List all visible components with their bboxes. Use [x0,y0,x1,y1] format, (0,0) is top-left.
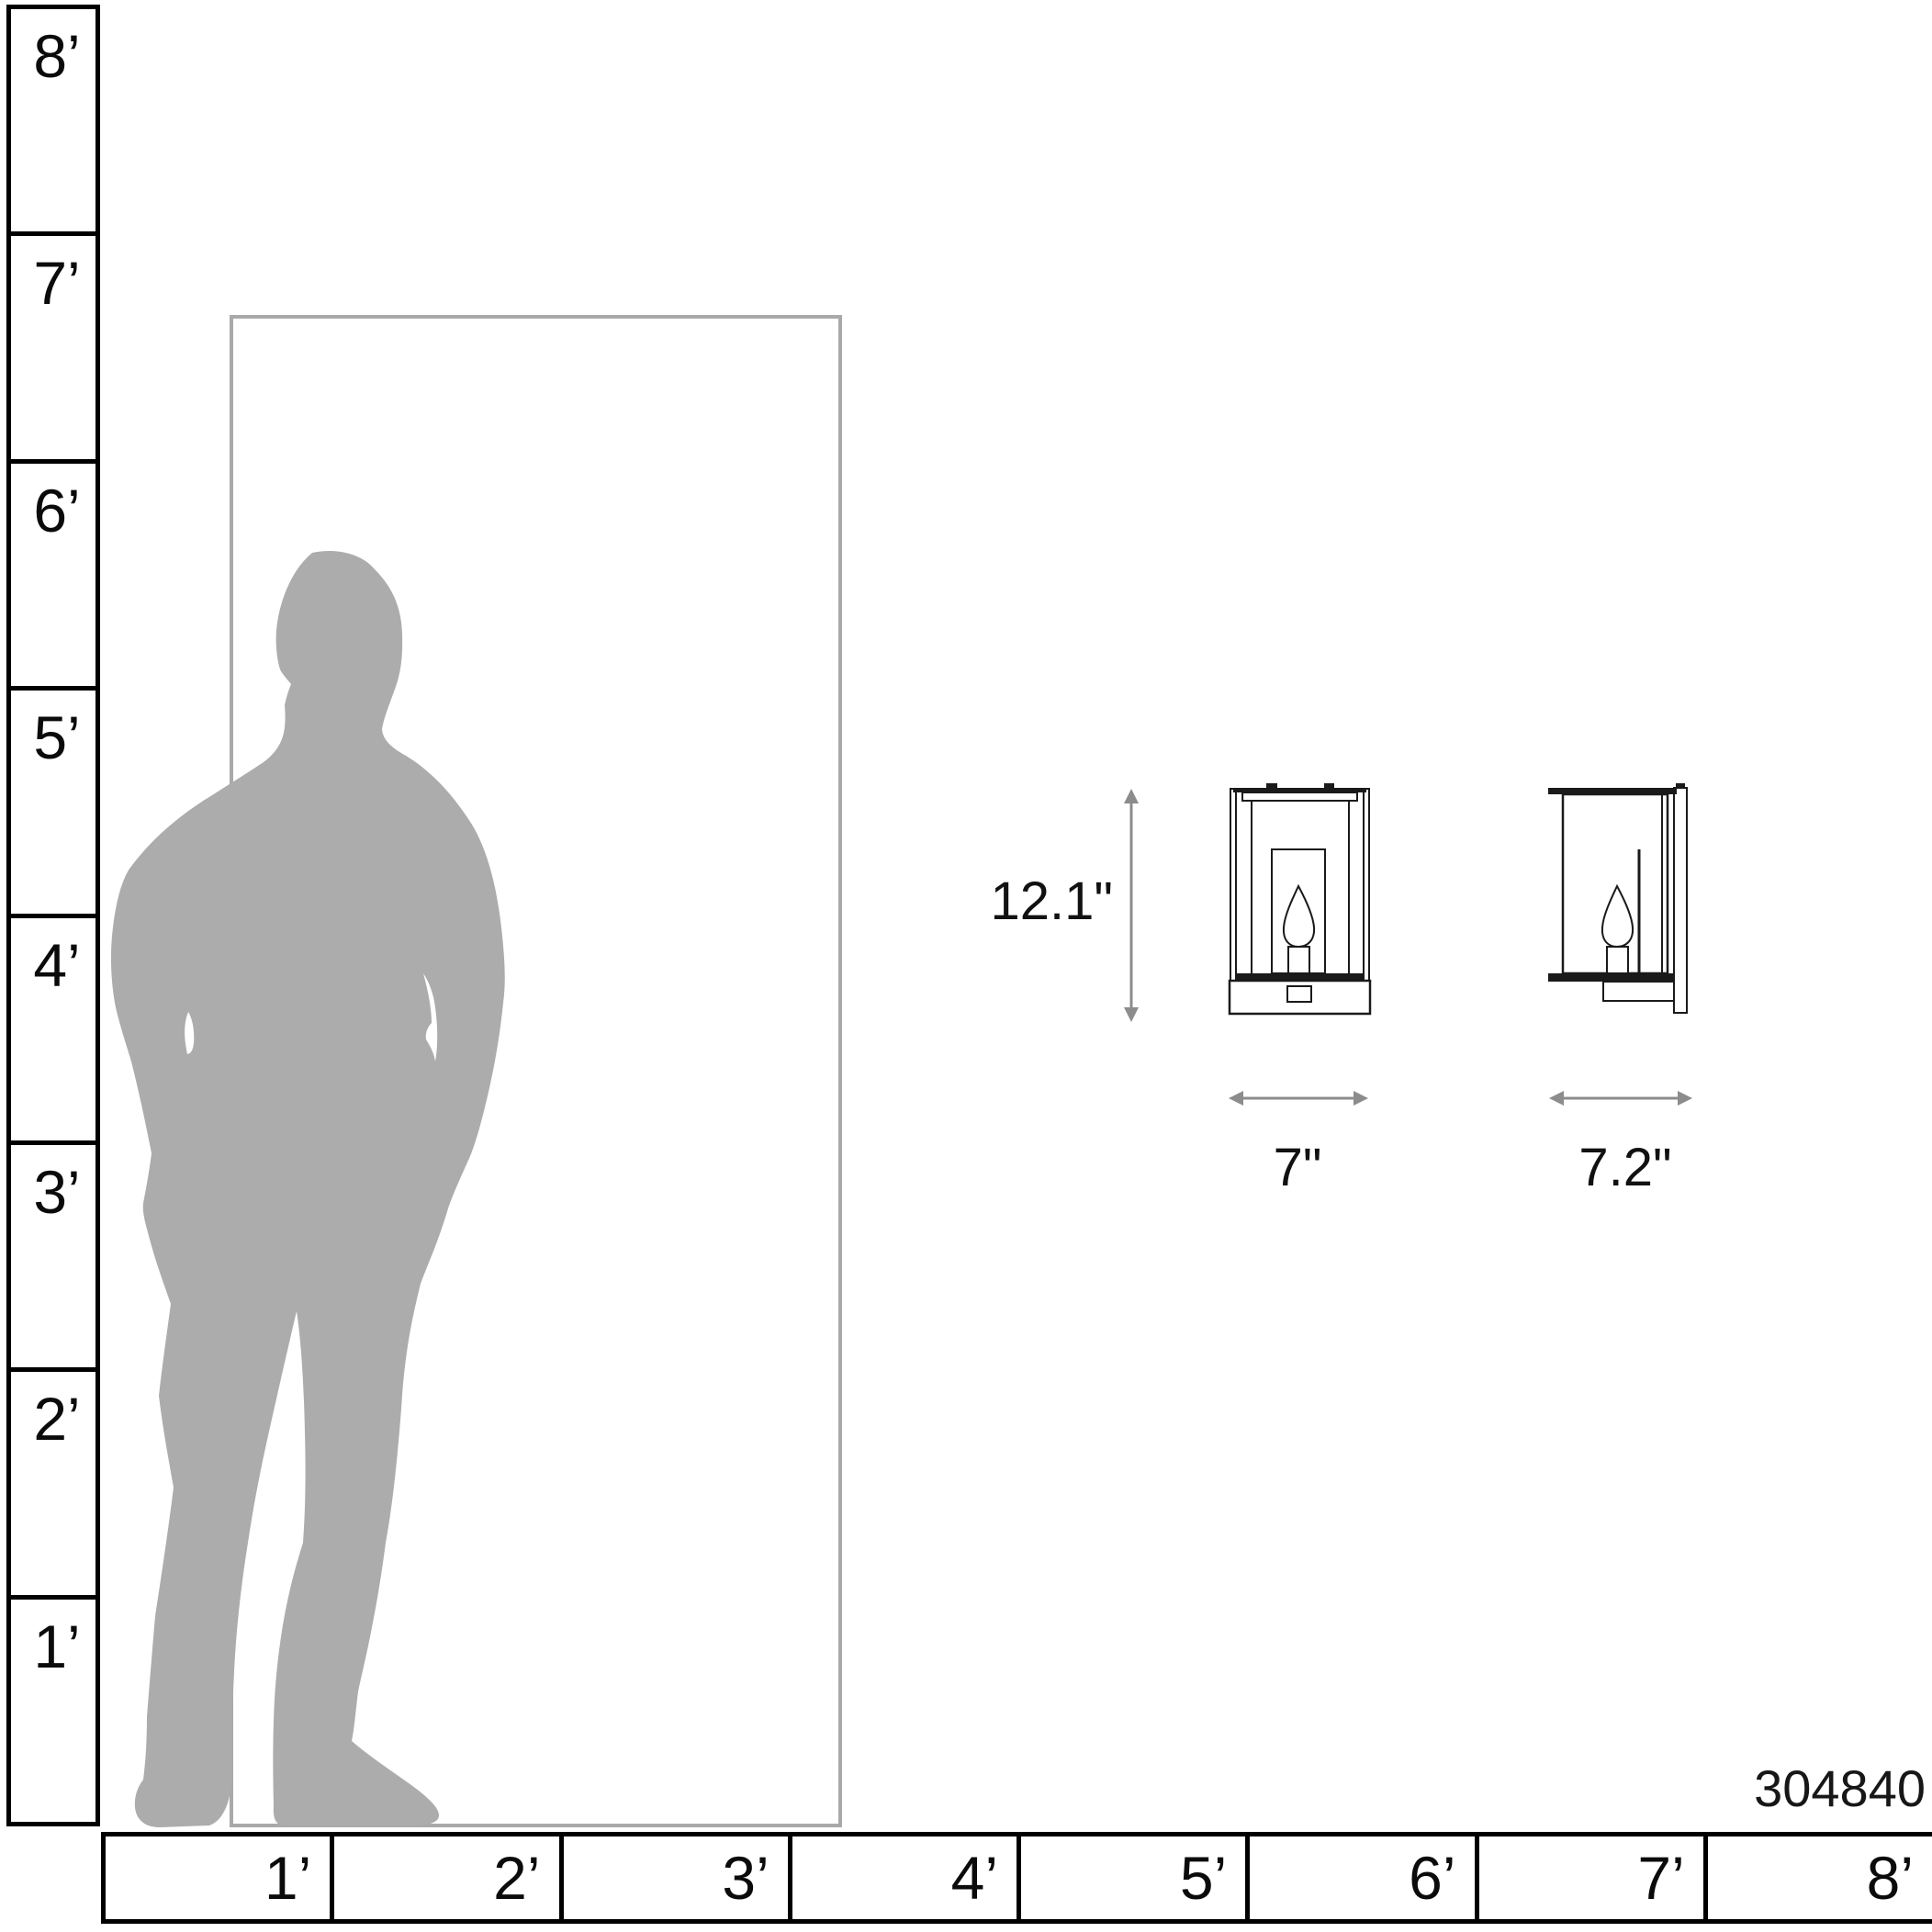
front-top-tab-right [1324,783,1334,788]
v-ruler-label-2ft: 2’ [11,1367,95,1594]
horizontal-ruler: 1’ 2’ 3’ 4’ 5’ 6’ 7’ 8’ [101,1832,1932,1924]
height-dimension-arrow [1120,788,1142,1023]
vertical-ruler: 8’ 7’ 6’ 5’ 4’ 3’ 2’ 1’ [6,5,100,1826]
side-flame [1602,886,1633,947]
front-flame [1284,886,1314,947]
front-candle [1288,947,1309,973]
side-candle [1607,947,1628,973]
v-ruler-label-3ft: 3’ [11,1140,95,1367]
side-step-box [1603,982,1674,1001]
depth-dimension-label: 7.2" [1552,1141,1699,1195]
h-ruler-label-6ft: 6’ [1245,1837,1474,1919]
h-ruler-label-2ft: 2’ [330,1837,558,1919]
h-ruler-label-1ft: 1’ [106,1837,330,1919]
arrowhead-down [1124,1007,1139,1022]
side-sill [1548,973,1674,982]
h-ruler-label-8ft: 8’ [1703,1837,1932,1919]
scale-diagram: 12.1" 7" 7.2" 304840 8’ 7’ 6’ 5’ 4’ 3’ 2… [0,0,1932,1932]
v-ruler-label-1ft: 1’ [11,1595,95,1822]
side-wall-plate [1674,788,1687,1013]
h-ruler-label-7ft: 7’ [1475,1837,1703,1919]
h-ruler-label-5ft: 5’ [1017,1837,1245,1919]
man-silhouette-shape [111,551,505,1827]
arrowhead-right [1354,1091,1368,1106]
front-left-post [1230,789,1236,981]
v-ruler-label-8ft: 8’ [11,9,95,231]
arrowhead-up [1124,789,1139,803]
front-right-post [1364,789,1369,981]
front-lid [1242,792,1357,801]
sconce-side-view [1543,781,1694,1019]
person-silhouette [83,549,514,1829]
height-dimension-label: 12.1" [937,875,1113,928]
v-ruler-label-4ft: 4’ [11,914,95,1140]
width-dimension-label: 7" [1224,1141,1371,1195]
depth-dimension-arrow [1548,1087,1693,1109]
sconce-front-view [1226,781,1375,1019]
h-ruler-label-4ft: 4’ [788,1837,1017,1919]
arrowhead-left [1229,1091,1243,1106]
v-ruler-label-6ft: 6’ [11,459,95,686]
side-top-tab [1676,783,1685,788]
arrowhead-right [1678,1091,1692,1106]
h-ruler-label-3ft: 3’ [559,1837,788,1919]
v-ruler-label-7ft: 7’ [11,231,95,458]
v-ruler-label-5ft: 5’ [11,686,95,913]
arrowhead-left [1549,1091,1564,1106]
width-dimension-arrow [1228,1087,1369,1109]
front-knob [1287,986,1311,1002]
front-top-tab-left [1266,783,1277,788]
product-number: 304840 [1754,1763,1926,1814]
